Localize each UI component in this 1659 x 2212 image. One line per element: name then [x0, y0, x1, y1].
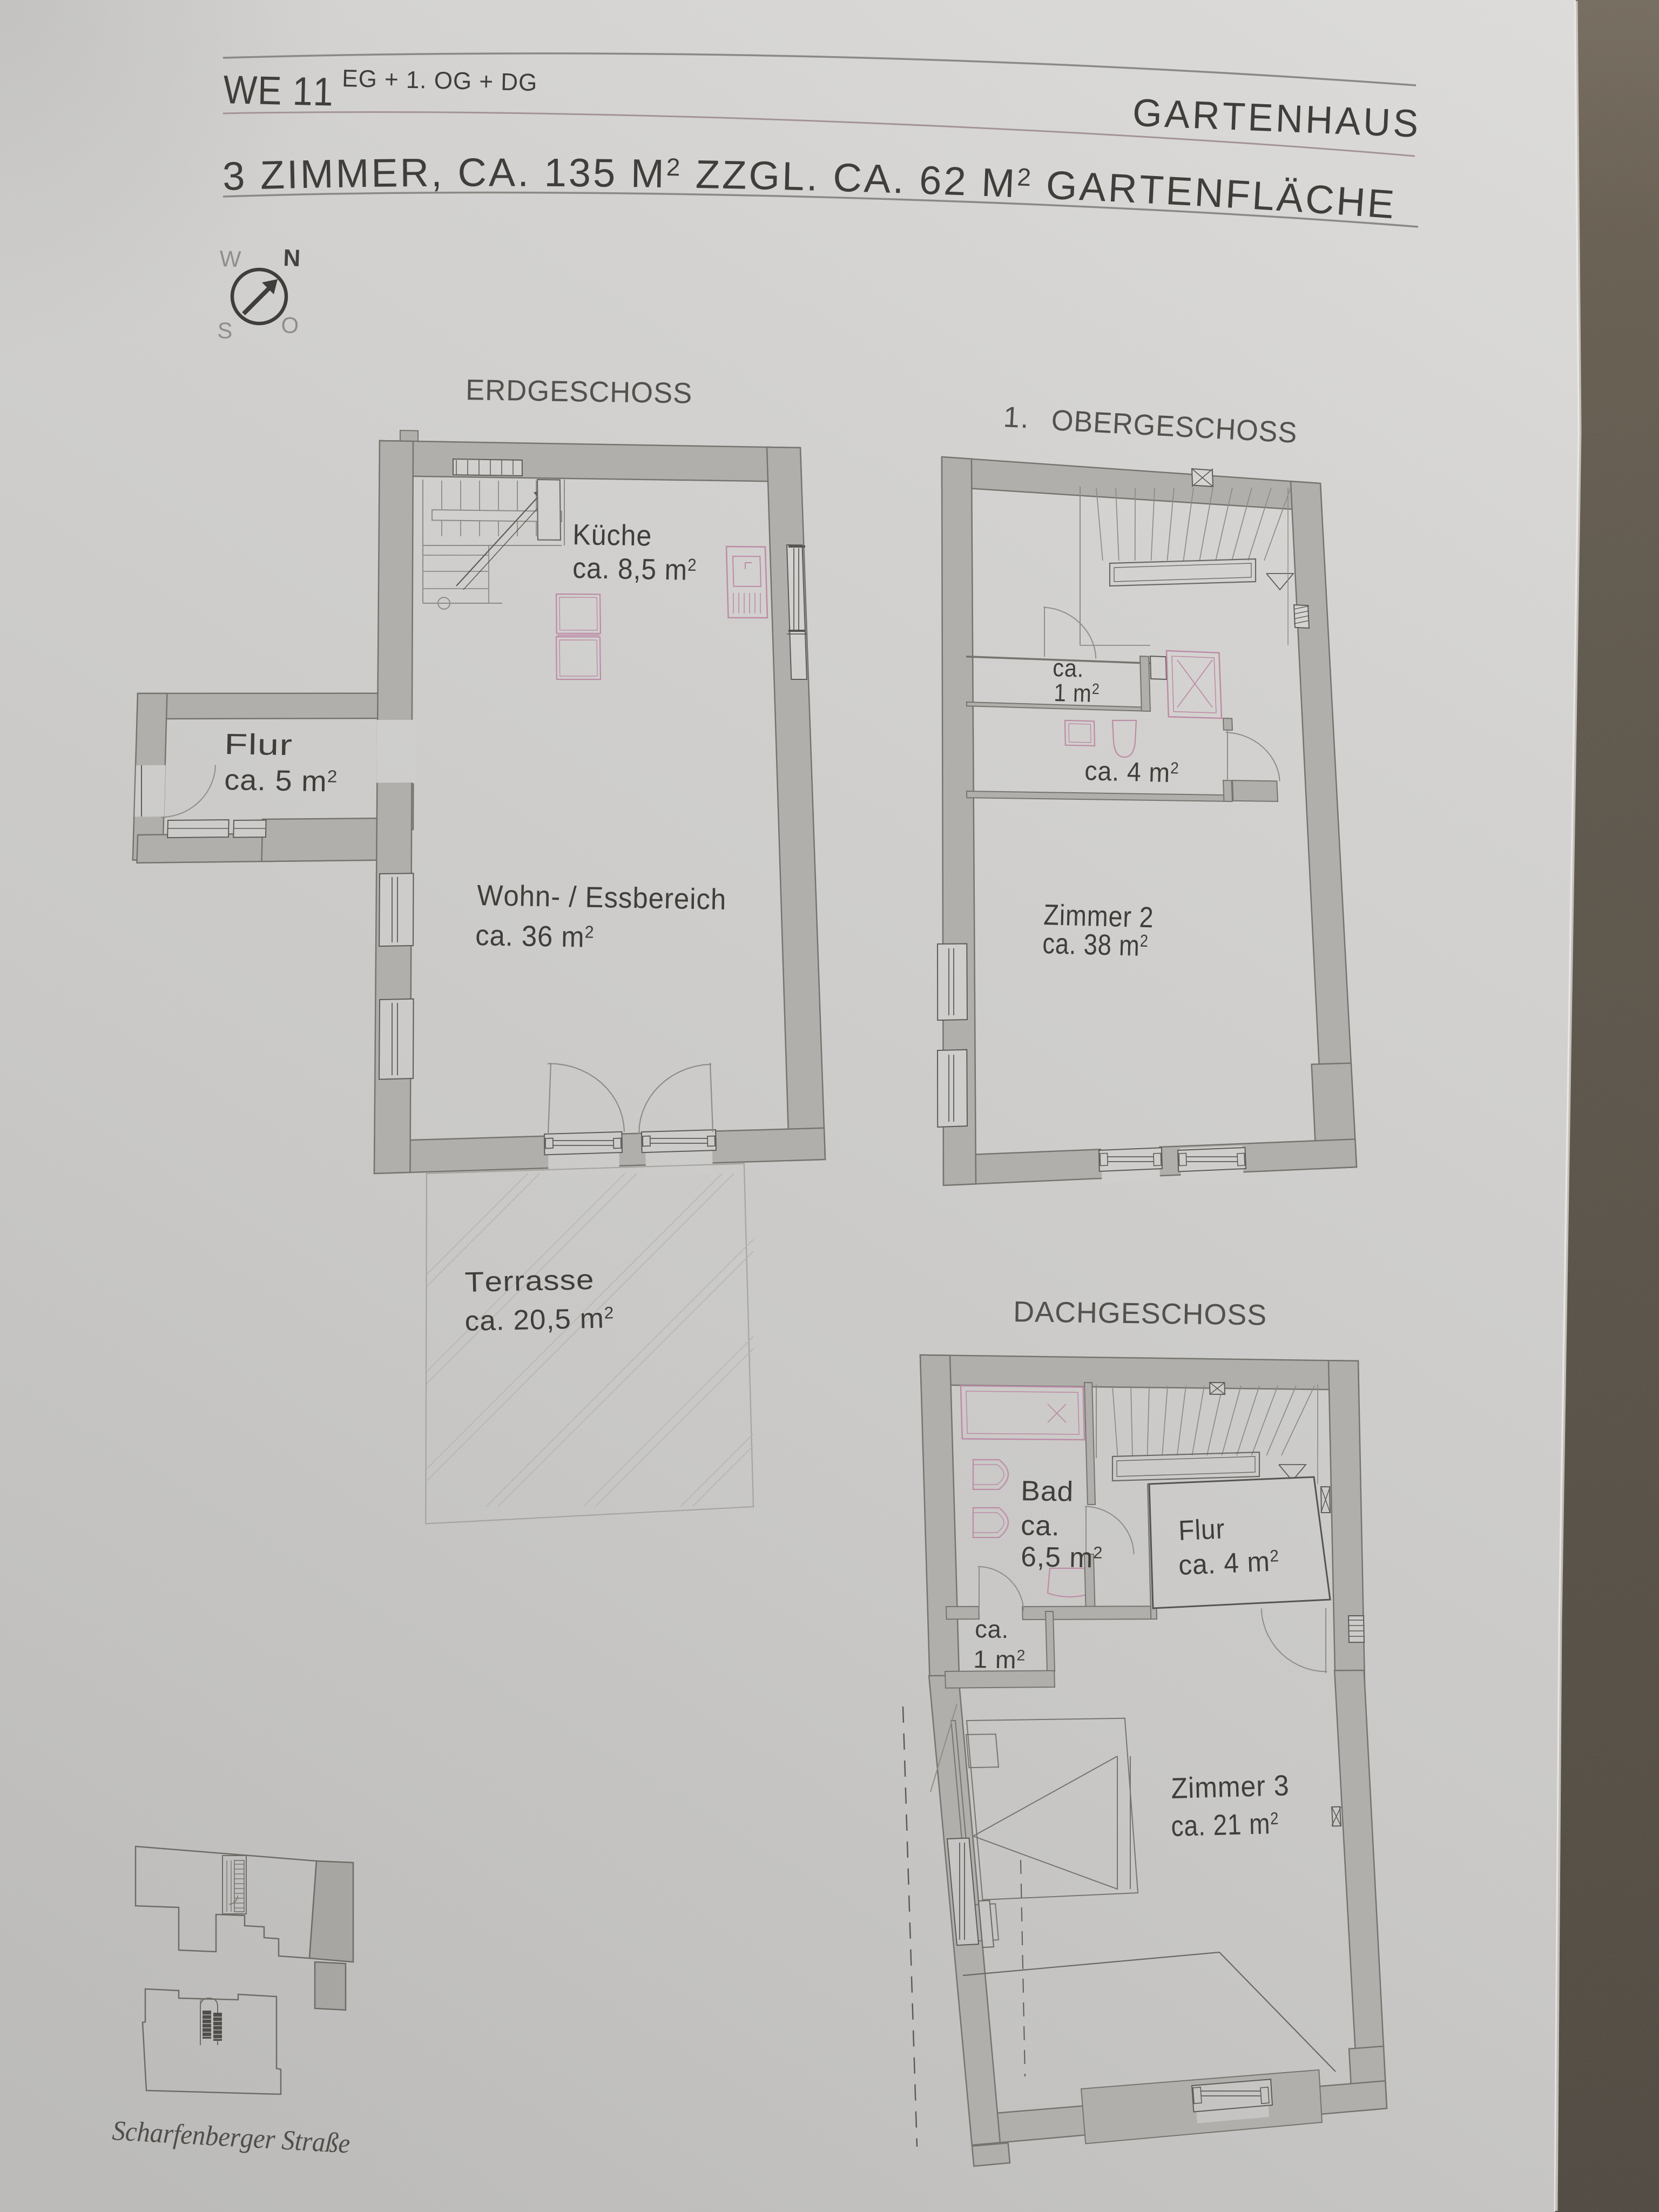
svg-text:W: W — [219, 246, 242, 272]
svg-text:ca.: ca. — [975, 1615, 1009, 1643]
svg-text:Zimmer 3: Zimmer 3 — [1171, 1769, 1290, 1805]
svg-text:ca. 20,5 m2: ca. 20,5 m2 — [464, 1303, 615, 1337]
svg-text:ca. 8,5 m2: ca. 8,5 m2 — [572, 552, 697, 586]
svg-text:WE 11: WE 11 — [223, 67, 334, 114]
svg-text:Wohn- / Essbereich: Wohn- / Essbereich — [477, 879, 727, 916]
svg-text:ca. 4 m2: ca. 4 m2 — [1084, 756, 1179, 788]
svg-text:S: S — [217, 318, 233, 343]
svg-text:ca. 38 m2: ca. 38 m2 — [1042, 927, 1149, 962]
svg-text:6,5 m2: 6,5 m2 — [1021, 1541, 1103, 1574]
svg-text:ERDGESCHOSS: ERDGESCHOSS — [466, 374, 693, 410]
svg-text:Küche: Küche — [572, 518, 652, 552]
svg-text:Terrasse: Terrasse — [464, 1264, 595, 1298]
svg-text:O: O — [281, 312, 299, 338]
svg-text:DACHGESCHOSS: DACHGESCHOSS — [1013, 1296, 1267, 1332]
svg-text:Bad: Bad — [1021, 1475, 1074, 1508]
svg-text:Flur: Flur — [224, 728, 293, 761]
svg-text:ca. 36 m2: ca. 36 m2 — [475, 919, 595, 954]
svg-text:ca. 5 m2: ca. 5 m2 — [224, 764, 338, 798]
svg-text:Flur: Flur — [1178, 1513, 1225, 1547]
svg-text:1.: 1. — [1002, 401, 1030, 434]
svg-text:ca. 4 m2: ca. 4 m2 — [1178, 1546, 1280, 1581]
svg-text:ca.: ca. — [1021, 1510, 1060, 1542]
svg-text:EG + 1. OG + DG: EG + 1. OG + DG — [342, 64, 538, 96]
svg-text:ca. 21 m2: ca. 21 m2 — [1171, 1808, 1280, 1843]
svg-text:N: N — [283, 245, 301, 272]
